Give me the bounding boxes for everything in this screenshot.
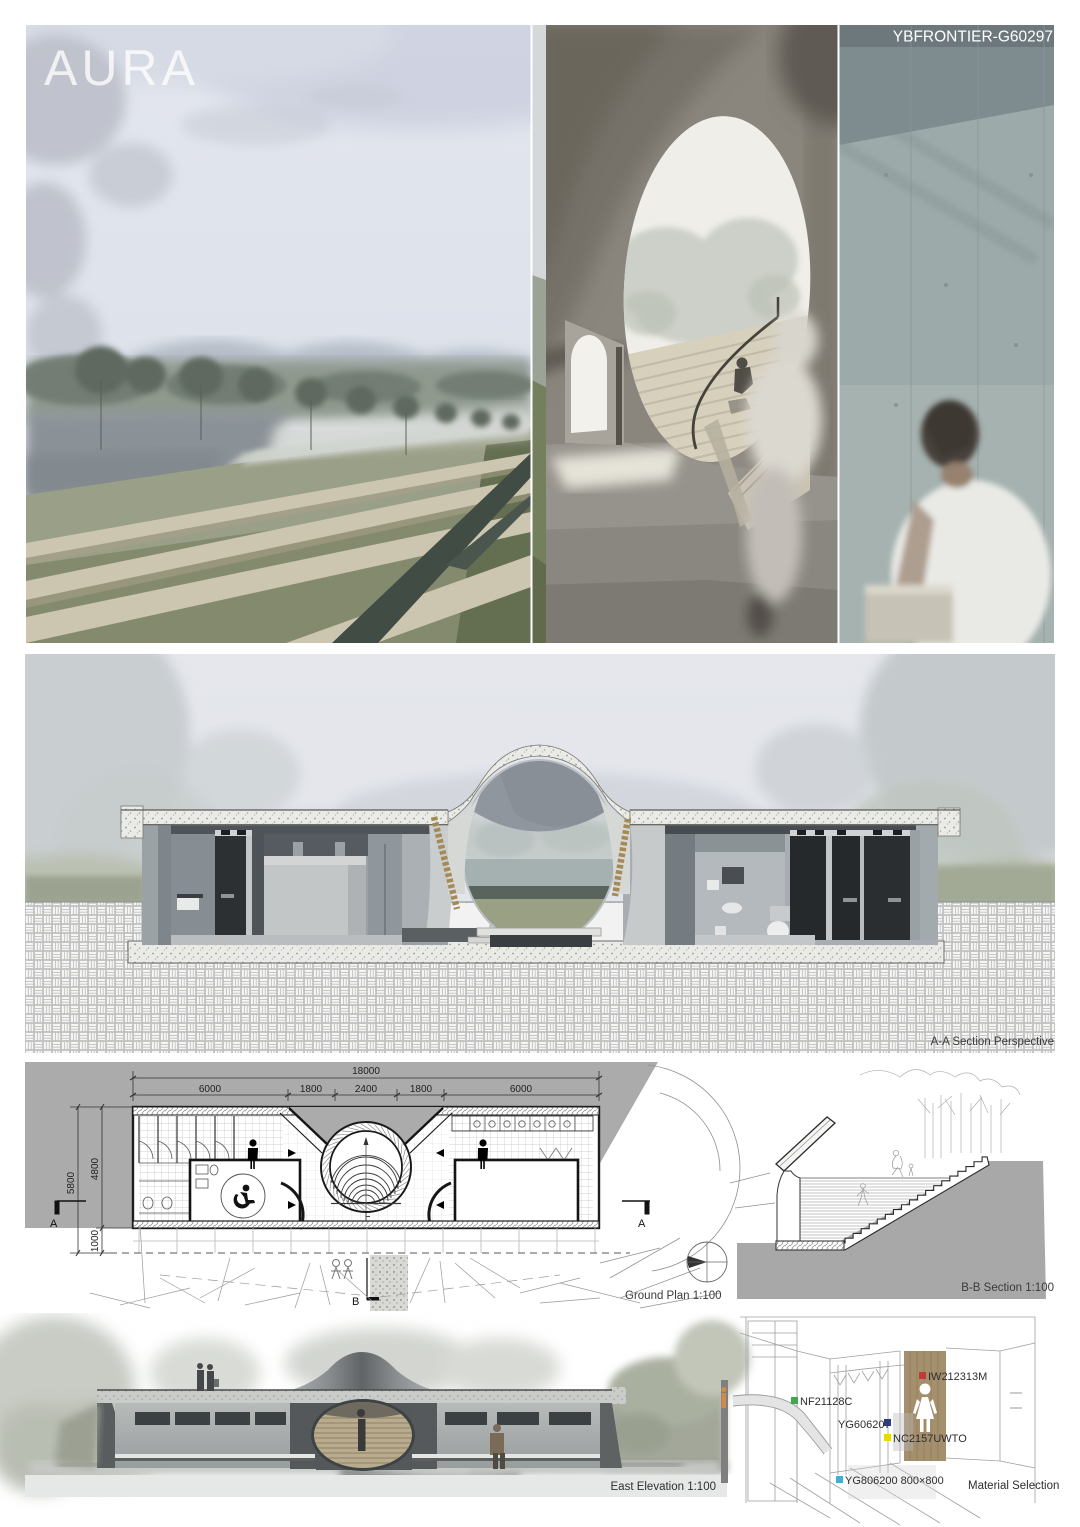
svg-text:YBFRONTIER-G60297: YBFRONTIER-G60297 <box>893 29 1053 46</box>
svg-text:IW212313M: IW212313M <box>928 1371 987 1383</box>
svg-text:1800: 1800 <box>410 1084 433 1095</box>
svg-text:1800: 1800 <box>300 1084 323 1095</box>
svg-text:Material Selection: Material Selection <box>968 1480 1059 1492</box>
svg-text:Ground Plan 1:100: Ground Plan 1:100 <box>625 1290 722 1302</box>
svg-text:YG806200 800×800: YG806200 800×800 <box>845 1475 944 1487</box>
svg-text:YG606207: YG606207 <box>838 1419 891 1431</box>
svg-text:6000: 6000 <box>510 1084 533 1095</box>
svg-text:5800: 5800 <box>66 1171 77 1194</box>
svg-text:NC2157UWTO: NC2157UWTO <box>893 1433 967 1445</box>
svg-text:1000: 1000 <box>90 1229 101 1252</box>
svg-text:18000: 18000 <box>352 1066 380 1077</box>
svg-text:B-B Section 1:100: B-B Section 1:100 <box>961 1282 1054 1294</box>
svg-text:NF21128C: NF21128C <box>800 1396 852 1408</box>
svg-text:B: B <box>352 1296 359 1308</box>
svg-text:A: A <box>638 1218 646 1230</box>
svg-text:A: A <box>50 1218 58 1230</box>
svg-text:4800: 4800 <box>90 1157 101 1180</box>
svg-text:A-A Section Perspective: A-A Section Perspective <box>931 1036 1054 1048</box>
svg-text:East Elevation 1:100: East Elevation 1:100 <box>611 1481 717 1493</box>
svg-text:2400: 2400 <box>355 1084 378 1095</box>
svg-text:AURA: AURA <box>44 40 199 96</box>
svg-text:6000: 6000 <box>199 1084 222 1095</box>
